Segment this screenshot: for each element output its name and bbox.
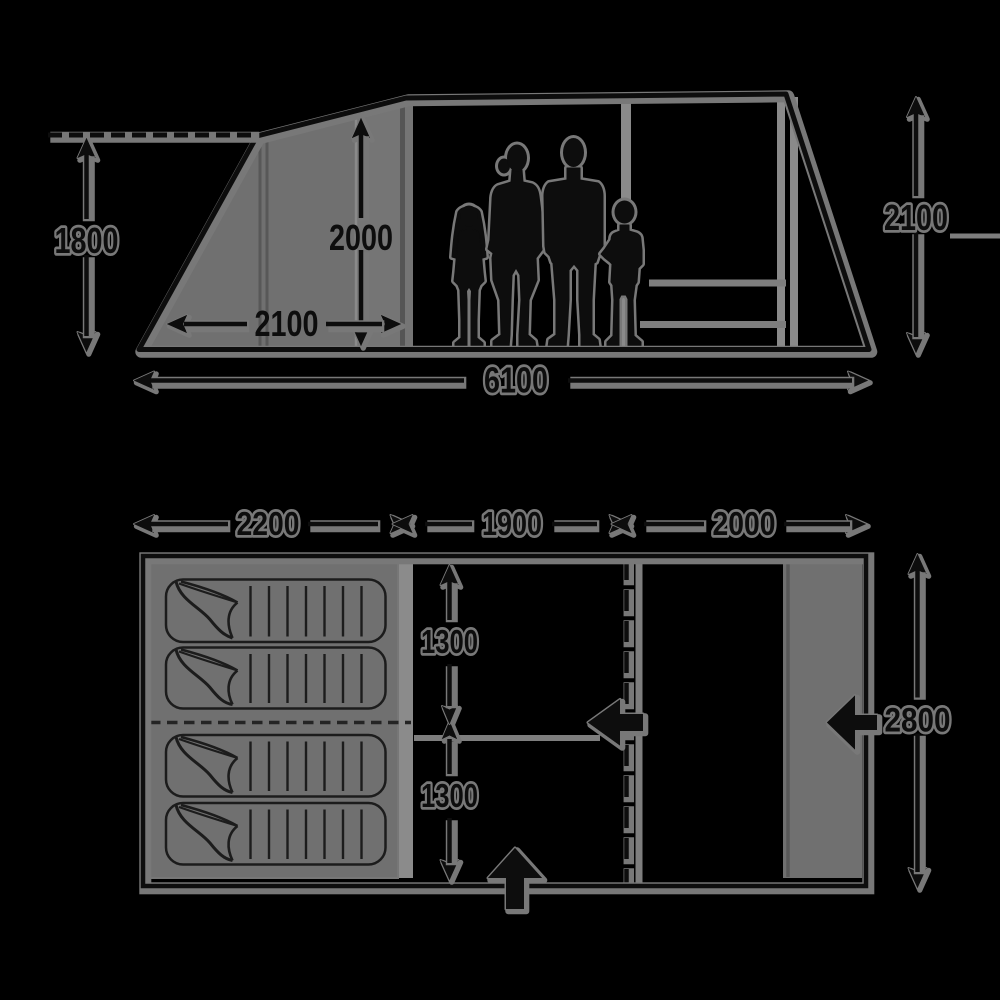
svg-text:2100: 2100 [884, 197, 948, 238]
svg-text:2000: 2000 [329, 217, 393, 258]
svg-text:1300: 1300 [421, 623, 478, 660]
svg-text:6100: 6100 [484, 360, 548, 401]
svg-text:2200: 2200 [237, 505, 300, 542]
svg-text:2800: 2800 [885, 702, 951, 740]
svg-text:1300: 1300 [421, 777, 478, 814]
svg-text:1900: 1900 [482, 505, 542, 542]
svg-text:2100: 2100 [255, 303, 319, 344]
svg-text:1800: 1800 [55, 220, 119, 261]
svg-text:2000: 2000 [713, 505, 776, 542]
